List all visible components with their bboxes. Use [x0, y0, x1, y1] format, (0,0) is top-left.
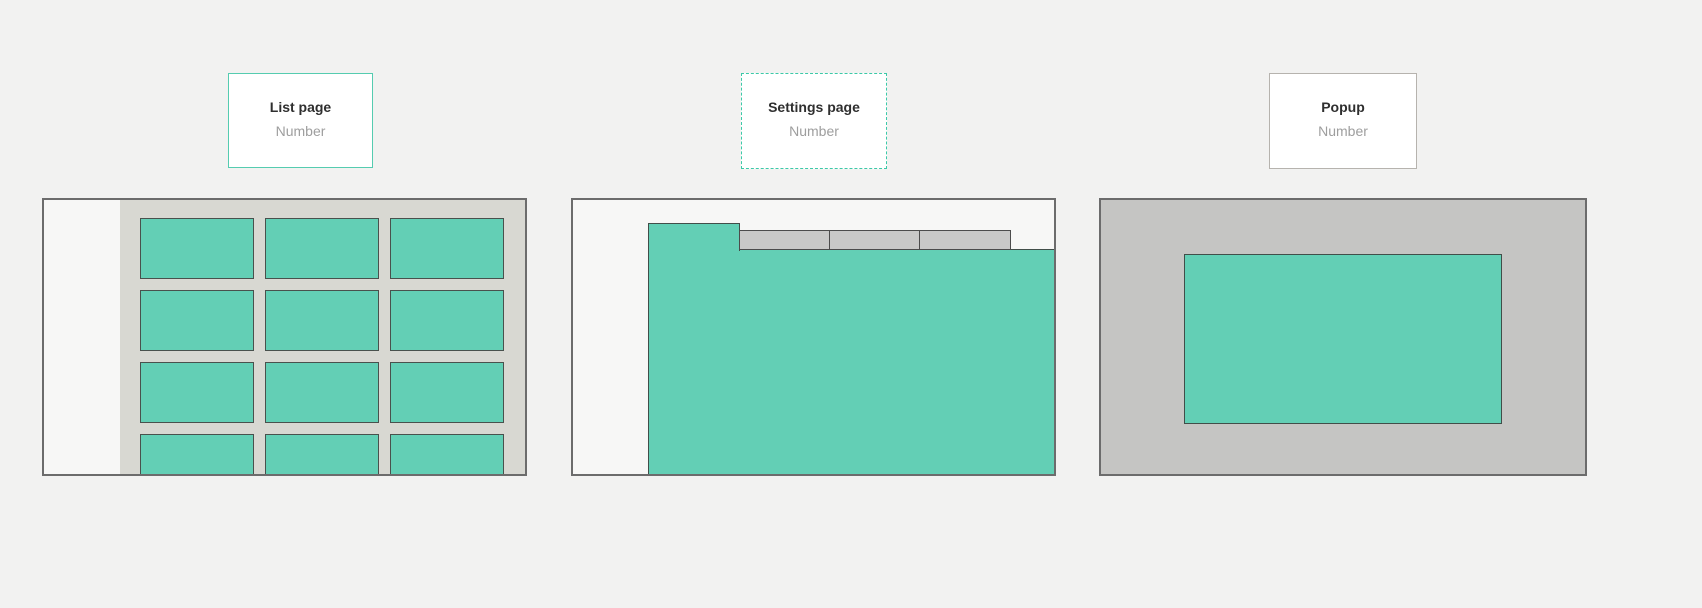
screen-card-list-page[interactable]: List page Number [228, 73, 373, 168]
grid-tile [390, 290, 504, 351]
grid-tile [265, 290, 379, 351]
screen-card-subtitle: Number [1318, 124, 1368, 138]
popup-dialog-shape [1184, 254, 1502, 424]
wireframe-settings-page[interactable] [571, 198, 1056, 476]
grid-tile [390, 434, 504, 476]
screen-card-popup[interactable]: Popup Number [1269, 73, 1417, 169]
grid-tile [140, 434, 254, 476]
wireframe-list-page[interactable] [42, 198, 527, 476]
screen-card-subtitle: Number [276, 124, 326, 138]
screen-card-title: Popup [1321, 100, 1365, 115]
screen-card-title: List page [270, 100, 331, 115]
inactive-tab-shape [739, 230, 831, 250]
card-grid-region [140, 218, 504, 476]
screen-card-title: Settings page [768, 100, 860, 115]
grid-tile [265, 434, 379, 476]
screen-card-subtitle: Number [789, 124, 839, 138]
grid-tile [265, 362, 379, 423]
inactive-tab-shape [829, 230, 921, 250]
grid-tile [140, 218, 254, 279]
grid-tile [390, 218, 504, 279]
active-tab-shape [648, 223, 740, 251]
grid-tile [140, 290, 254, 351]
sidebar-region [44, 200, 120, 474]
inactive-tab-shape [919, 230, 1011, 250]
grid-tile [265, 218, 379, 279]
flow-canvas: List page Number Settings page Number Po… [0, 0, 1702, 608]
grid-tile [140, 362, 254, 423]
content-body-shape [648, 249, 1056, 476]
wireframe-popup[interactable] [1099, 198, 1587, 476]
screen-card-settings-page[interactable]: Settings page Number [741, 73, 887, 169]
grid-tile [390, 362, 504, 423]
